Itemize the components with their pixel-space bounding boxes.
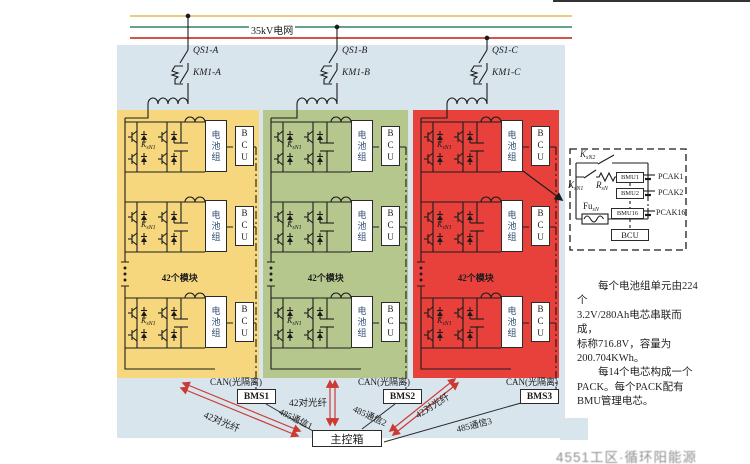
battery-group-box: 电池组 bbox=[205, 200, 227, 252]
bcu-box: BCU bbox=[531, 206, 550, 246]
fuse-symbol bbox=[582, 214, 608, 224]
watermark-text: 4551工区·循环阳能源 bbox=[556, 446, 697, 464]
note-line: 每14个电芯构成一个 bbox=[577, 366, 701, 380]
can-label-2: CAN(光隔离) bbox=[358, 375, 410, 388]
km-switch-label: KM1-B bbox=[342, 68, 370, 78]
module-switch-sub: sN1 bbox=[146, 225, 155, 231]
module-count-label: 42个模块 bbox=[458, 271, 494, 284]
battery-group-box: 电池组 bbox=[351, 296, 373, 348]
battery-group-box: 电池组 bbox=[351, 200, 373, 252]
detail-bcu-box: BCU bbox=[611, 229, 649, 241]
pcak16-label: PCAK16 bbox=[656, 208, 685, 217]
note-line: 每个电池组单元由224个 bbox=[577, 280, 701, 309]
module-switch-sub: sN1 bbox=[442, 321, 451, 327]
bcu-box: BCU bbox=[531, 126, 550, 166]
bcu-box: BCU bbox=[381, 206, 400, 246]
module-count-label: 42个模块 bbox=[162, 271, 198, 284]
main-control-box: 主控箱 bbox=[312, 430, 382, 447]
bmu16-box: BMU16 bbox=[611, 208, 644, 219]
module-switch-sub: sN1 bbox=[146, 145, 155, 151]
module-switch-sub: sN1 bbox=[442, 145, 451, 151]
module-switch-sub: sN1 bbox=[292, 321, 301, 327]
module-switch-sub: sN1 bbox=[292, 225, 301, 231]
module-switch-label: KsN1 bbox=[287, 316, 302, 327]
grid-voltage-label: 35kV电网 bbox=[249, 22, 295, 37]
can-label-1: CAN(光隔离) bbox=[210, 375, 262, 388]
diagram-canvas: 电池组BCUKsN1电池组BCUKsN1电池组BCUKsN142个模块QS1-A… bbox=[0, 0, 750, 464]
qs-switch-label: QS1-B bbox=[342, 46, 367, 56]
km-switch-label: KM1-C bbox=[492, 68, 521, 78]
detail-ksn1-label: KsN1 bbox=[568, 180, 583, 192]
module-count-label: 42个模块 bbox=[308, 271, 344, 284]
module-switch-label: KsN1 bbox=[287, 220, 302, 231]
module-switch-sub: sN1 bbox=[146, 321, 155, 327]
detail-fusn-label: FusN bbox=[583, 201, 599, 213]
module-switch-label: KsN1 bbox=[141, 220, 156, 231]
battery-group-box: 电池组 bbox=[205, 120, 227, 172]
pcak1-label: PCAK1 bbox=[658, 172, 683, 181]
bmu2-box: BMU2 bbox=[616, 188, 644, 199]
note-line: 3.2V/280Ah电芯串联而成， bbox=[577, 309, 701, 338]
bms3-box: BMS3 bbox=[520, 389, 559, 404]
qs-switch-label: QS1-A bbox=[193, 46, 218, 56]
battery-group-box: 电池组 bbox=[205, 296, 227, 348]
detail-ksn1-sub: sN1 bbox=[574, 186, 583, 192]
battery-group-box: 电池组 bbox=[501, 296, 523, 348]
module-switch-label: KsN1 bbox=[141, 316, 156, 327]
bms1-box: BMS1 bbox=[237, 389, 276, 404]
detail-ksn2-label: KsN2 bbox=[580, 149, 595, 161]
note-line: PACK。每个PACK配有 bbox=[577, 381, 701, 395]
km-switch-label: KM1-A bbox=[193, 68, 221, 78]
battery-group-box: 电池组 bbox=[501, 120, 523, 172]
fiber-label-2: 42对光纤 bbox=[289, 395, 327, 409]
detail-fusn-base: Fu bbox=[583, 201, 593, 211]
bms2-box: BMS2 bbox=[383, 389, 422, 404]
note-line: 200.704KWh。 bbox=[577, 352, 701, 366]
module-switch-sub: sN1 bbox=[442, 225, 451, 231]
pcak2-label: PCAK2 bbox=[658, 188, 683, 197]
battery-group-box: 电池组 bbox=[351, 120, 373, 172]
module-switch-label: KsN1 bbox=[437, 140, 452, 151]
module-switch-label: KsN1 bbox=[141, 140, 156, 151]
detail-rsn-label: RsN bbox=[596, 180, 608, 192]
can-label-3: CAN(光隔离) bbox=[506, 375, 558, 388]
bcu-box: BCU bbox=[235, 206, 254, 246]
module-switch-label: KsN1 bbox=[437, 316, 452, 327]
module-switch-label: KsN1 bbox=[437, 220, 452, 231]
bcu-box: BCU bbox=[235, 302, 254, 342]
detail-fusn-sub: sN bbox=[593, 207, 599, 213]
qs-switch-label: QS1-C bbox=[492, 46, 518, 56]
note-line: BMU管理电芯。 bbox=[577, 395, 701, 409]
bcu-box: BCU bbox=[381, 126, 400, 166]
bcu-box: BCU bbox=[531, 302, 550, 342]
detail-rsn-sub: sN bbox=[602, 186, 608, 192]
module-switch-label: KsN1 bbox=[287, 140, 302, 151]
note-line: 标称716.8V，容量为 bbox=[577, 338, 701, 352]
bcu-box: BCU bbox=[381, 302, 400, 342]
battery-group-box: 电池组 bbox=[501, 200, 523, 252]
detail-ksn2-sub: sN2 bbox=[586, 155, 595, 161]
battery-note: 每个电池组单元由224个 3.2V/280Ah电芯串联而成， 标称716.8V，… bbox=[577, 280, 701, 410]
bcu-box: BCU bbox=[235, 126, 254, 166]
bmu1-box: BMU1 bbox=[616, 172, 644, 183]
module-switch-sub: sN1 bbox=[292, 145, 301, 151]
